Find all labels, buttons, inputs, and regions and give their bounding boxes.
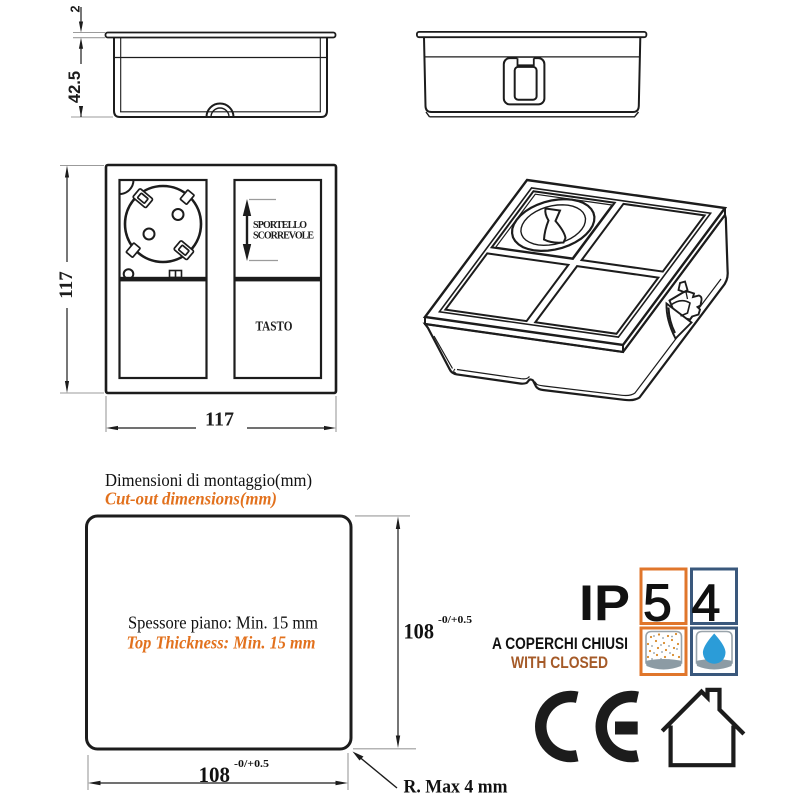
svg-text:WITH CLOSED: WITH CLOSED <box>511 654 608 672</box>
svg-text:-0/+0.5: -0/+0.5 <box>438 614 473 626</box>
svg-text:2: 2 <box>69 6 83 13</box>
svg-text:117: 117 <box>56 271 77 299</box>
svg-text:Top Thickness: Min. 15 mm: Top Thickness: Min. 15 mm <box>127 633 316 653</box>
svg-text:R. Max 4 mm: R. Max 4 mm <box>404 777 508 798</box>
svg-text:SCORREVOLE: SCORREVOLE <box>253 231 314 242</box>
svg-text:42.5: 42.5 <box>66 71 84 103</box>
svg-text:5: 5 <box>643 575 672 633</box>
svg-text:117: 117 <box>205 409 234 431</box>
svg-text:-0/+0.5: -0/+0.5 <box>234 758 270 770</box>
svg-text:108: 108 <box>404 619 435 644</box>
svg-text:TASTO: TASTO <box>256 319 293 334</box>
svg-text:4: 4 <box>692 575 721 633</box>
svg-text:Spessore piano: Min. 15 mm: Spessore piano: Min. 15 mm <box>128 613 318 633</box>
svg-text:SPORTELLO: SPORTELLO <box>253 220 307 231</box>
svg-text:A COPERCHI CHIUSI: A COPERCHI CHIUSI <box>492 635 628 653</box>
svg-text:IP: IP <box>579 575 630 631</box>
svg-text:Cut-out dimensions(mm): Cut-out dimensions(mm) <box>105 489 277 510</box>
svg-text:108: 108 <box>199 762 231 787</box>
